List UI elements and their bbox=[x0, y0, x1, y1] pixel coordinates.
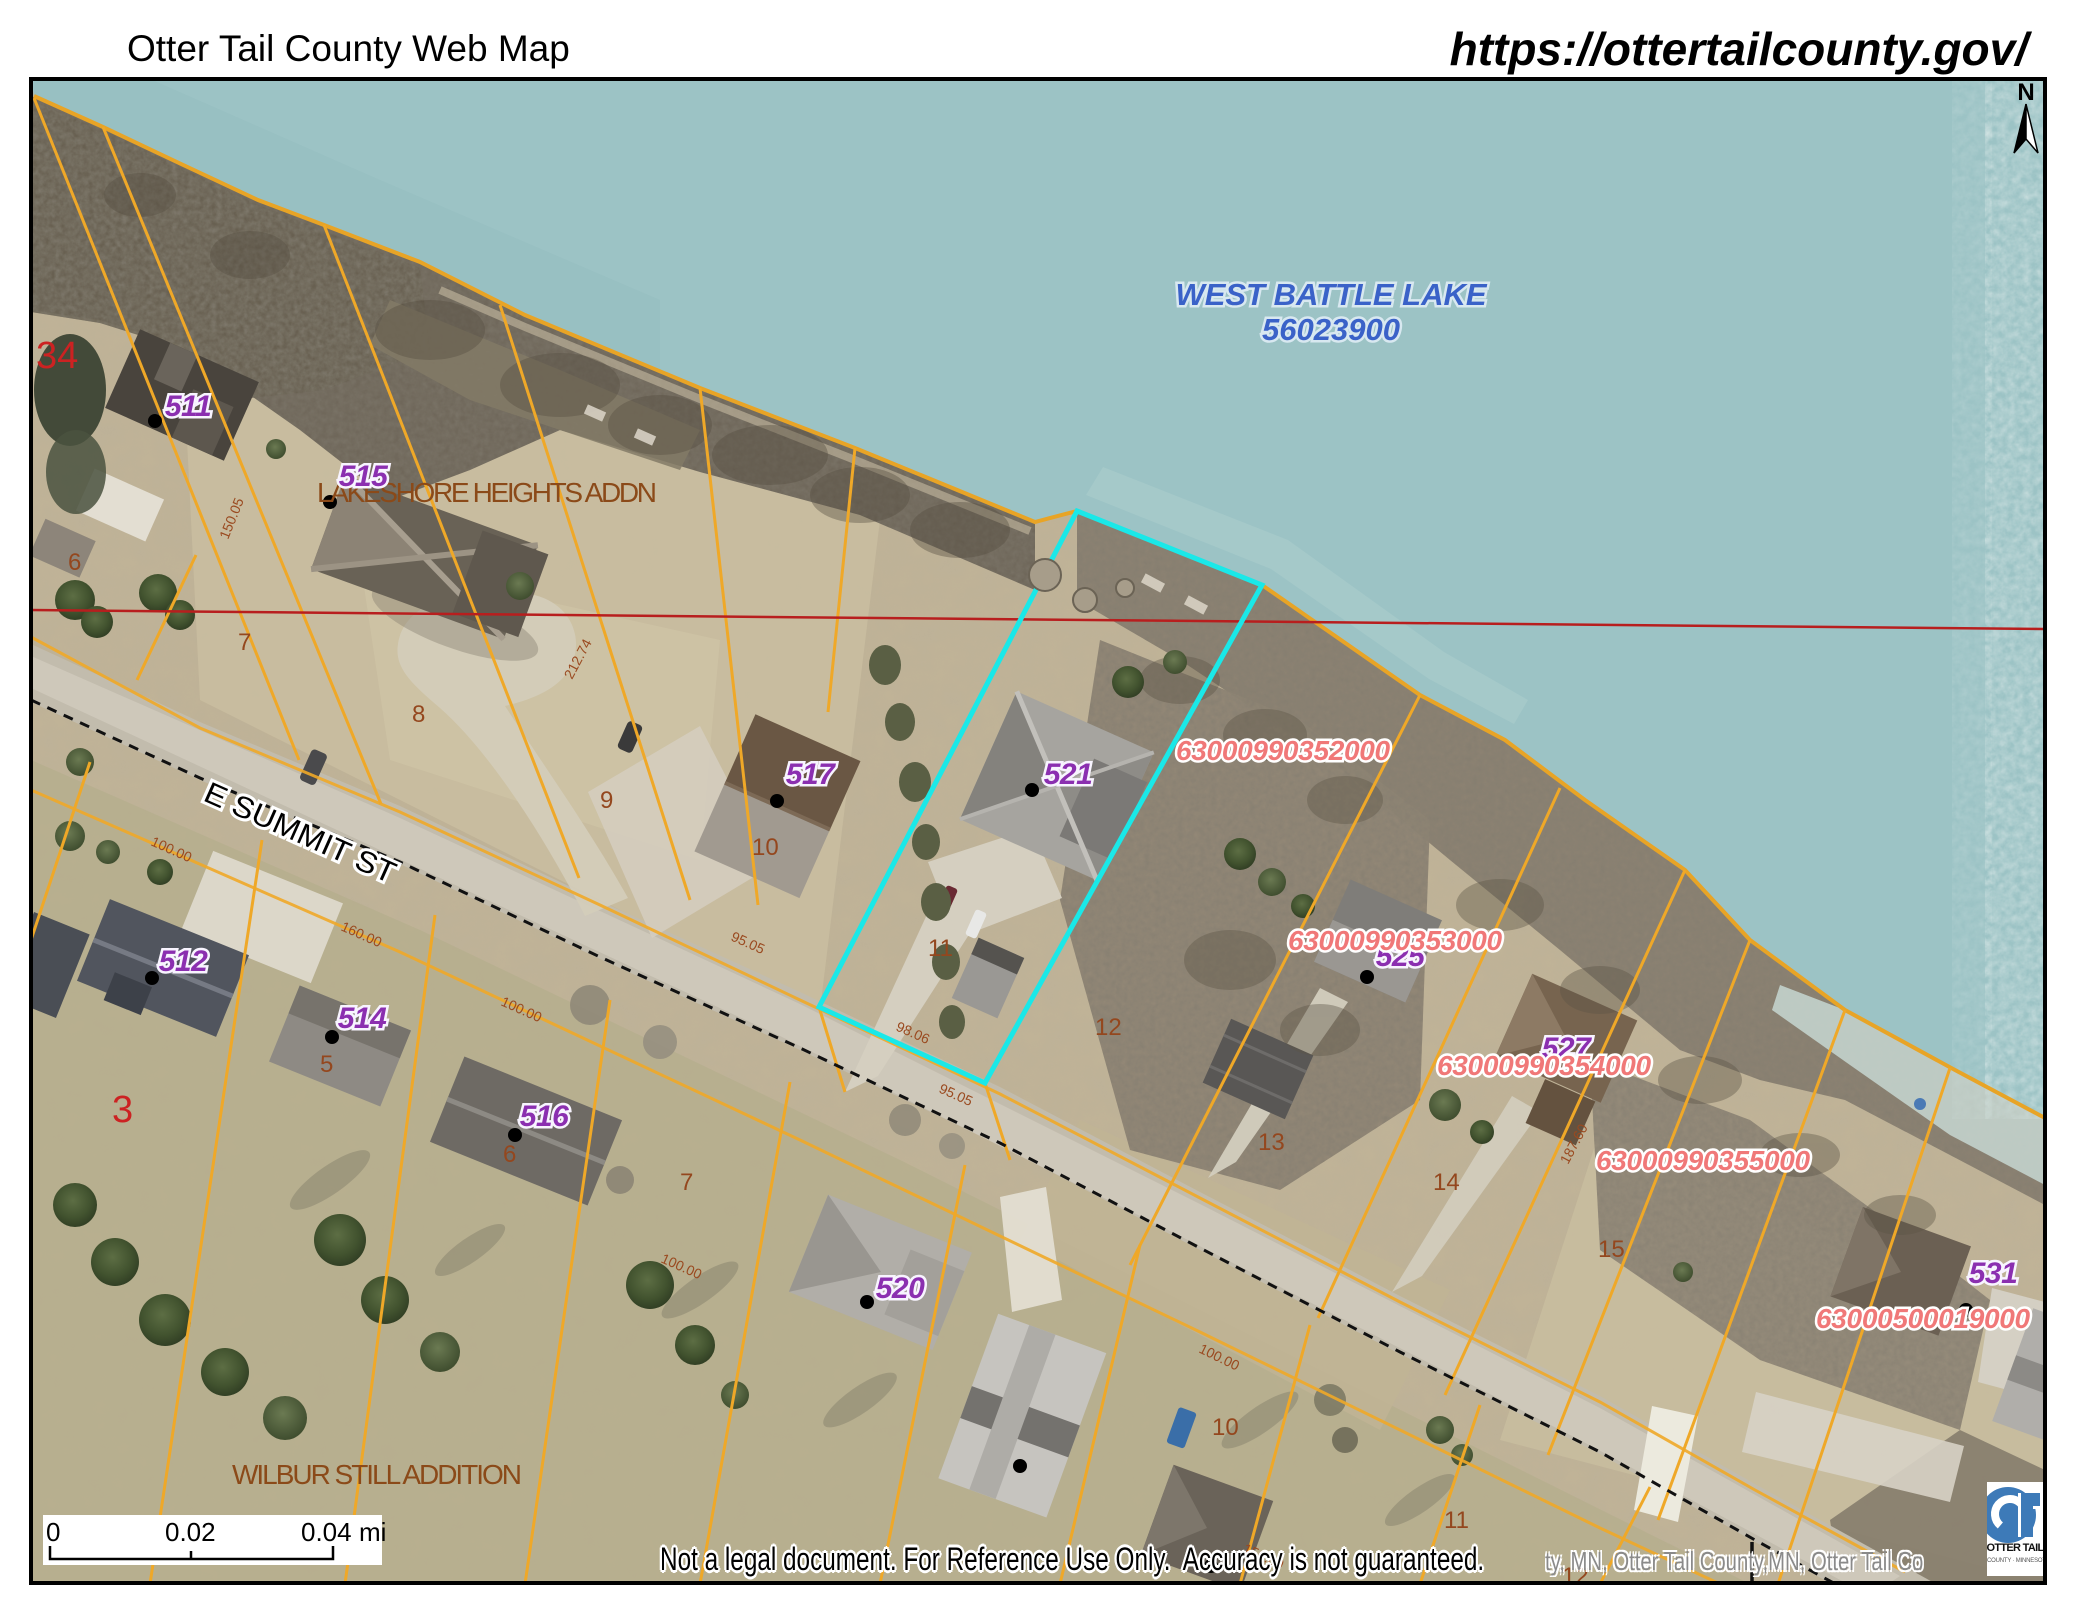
svg-text:10: 10 bbox=[752, 834, 779, 861]
svg-text:WEST BATTLE LAKE: WEST BATTLE LAKE bbox=[1175, 277, 1487, 312]
svg-text:511: 511 bbox=[165, 390, 211, 423]
svg-text:13: 13 bbox=[1258, 1129, 1285, 1156]
svg-text:11: 11 bbox=[1444, 1507, 1469, 1534]
svg-text:521: 521 bbox=[1044, 758, 1093, 791]
svg-text:15: 15 bbox=[1598, 1236, 1625, 1263]
svg-text:63000500019000: 63000500019000 bbox=[1816, 1303, 2031, 1334]
svg-text:14: 14 bbox=[1433, 1169, 1460, 1196]
svg-text:63000990353000: 63000990353000 bbox=[1288, 925, 1503, 956]
svg-text:56023900: 56023900 bbox=[1262, 312, 1400, 347]
svg-text:512: 512 bbox=[159, 945, 208, 978]
svg-text:6: 6 bbox=[503, 1141, 516, 1168]
svg-text:11: 11 bbox=[928, 935, 953, 962]
svg-text:8: 8 bbox=[412, 701, 425, 728]
svg-text:12: 12 bbox=[1095, 1014, 1122, 1041]
svg-text:63000990354000: 63000990354000 bbox=[1437, 1050, 1652, 1081]
svg-text:3: 3 bbox=[112, 1089, 133, 1131]
svg-text:514: 514 bbox=[338, 1002, 387, 1035]
svg-text:517: 517 bbox=[786, 758, 836, 791]
svg-text:WILBUR STILL ADDITION: WILBUR STILL ADDITION bbox=[232, 1459, 522, 1490]
svg-text:34: 34 bbox=[36, 335, 78, 377]
svg-text:63000990352000: 63000990352000 bbox=[1176, 735, 1391, 766]
svg-text:N: N bbox=[2017, 79, 2034, 106]
svg-text:9: 9 bbox=[600, 787, 613, 814]
svg-text:5: 5 bbox=[320, 1051, 333, 1078]
svg-text:6: 6 bbox=[68, 549, 81, 576]
svg-text:520: 520 bbox=[876, 1272, 925, 1305]
svg-text:10: 10 bbox=[1212, 1414, 1239, 1441]
svg-text:7: 7 bbox=[238, 629, 251, 656]
svg-text:515: 515 bbox=[339, 460, 389, 493]
svg-text:531: 531 bbox=[1969, 1257, 2018, 1290]
svg-text:63000990355000: 63000990355000 bbox=[1596, 1145, 1811, 1176]
svg-text:7: 7 bbox=[680, 1169, 693, 1196]
svg-text:516: 516 bbox=[520, 1100, 569, 1133]
